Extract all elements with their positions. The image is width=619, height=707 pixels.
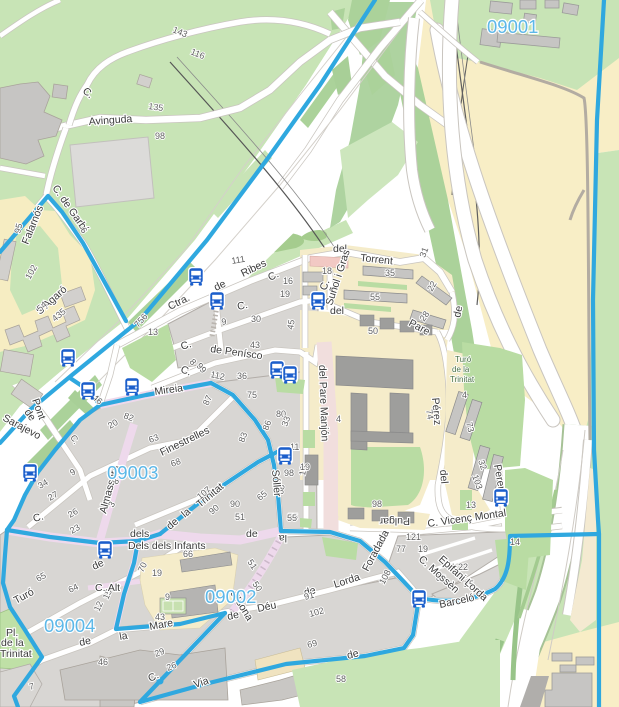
svg-text:46: 46 [98, 657, 108, 667]
svg-text:90: 90 [230, 499, 240, 509]
svg-text:19: 19 [152, 568, 162, 578]
svg-text:09003: 09003 [107, 462, 158, 483]
svg-text:19: 19 [418, 544, 428, 554]
svg-text:98: 98 [284, 468, 294, 478]
svg-text:Trinitat: Trinitat [450, 375, 475, 384]
svg-text:Pulgar: Pulgar [379, 515, 410, 527]
svg-text:Turó: Turó [455, 355, 472, 364]
svg-text:98: 98 [155, 131, 165, 141]
svg-text:Trinitat: Trinitat [0, 648, 32, 660]
svg-text:36: 36 [237, 371, 247, 381]
svg-text:C. Alt: C. Alt [95, 582, 120, 594]
svg-text:de la: de la [452, 365, 470, 374]
svg-text:19: 19 [300, 462, 310, 472]
svg-text:16: 16 [283, 276, 293, 286]
svg-text:18: 18 [322, 266, 332, 276]
svg-text:la: la [279, 532, 287, 544]
svg-text:4: 4 [462, 390, 467, 400]
svg-text:121: 121 [406, 532, 421, 542]
svg-text:14: 14 [510, 537, 520, 547]
svg-text:58: 58 [336, 674, 346, 684]
svg-text:74: 74 [424, 409, 436, 421]
svg-text:Sóller: Sóller [269, 469, 283, 497]
svg-text:Dels dels Infants: Dels dels Infants [128, 540, 206, 552]
svg-text:19: 19 [280, 289, 290, 299]
svg-text:50: 50 [368, 326, 378, 336]
svg-text:13: 13 [466, 500, 476, 510]
svg-text:75: 75 [247, 390, 257, 400]
svg-text:09001: 09001 [487, 16, 538, 37]
svg-text:98: 98 [372, 499, 382, 509]
svg-text:51: 51 [235, 512, 245, 522]
svg-text:30: 30 [251, 314, 261, 324]
svg-text:13: 13 [148, 327, 158, 337]
svg-text:45: 45 [285, 319, 297, 331]
svg-text:09002: 09002 [205, 586, 256, 607]
svg-text:55: 55 [370, 292, 380, 302]
svg-text:dels: dels [130, 528, 149, 540]
svg-text:135: 135 [148, 101, 164, 113]
svg-text:4: 4 [336, 414, 341, 424]
svg-text:de: de [246, 528, 258, 540]
svg-text:66: 66 [183, 549, 193, 559]
svg-text:09004: 09004 [44, 615, 95, 636]
svg-text:35: 35 [385, 268, 395, 278]
svg-text:77: 77 [396, 544, 406, 554]
svg-text:9: 9 [165, 592, 170, 602]
svg-text:55: 55 [287, 513, 297, 523]
svg-text:del: del [437, 469, 450, 484]
